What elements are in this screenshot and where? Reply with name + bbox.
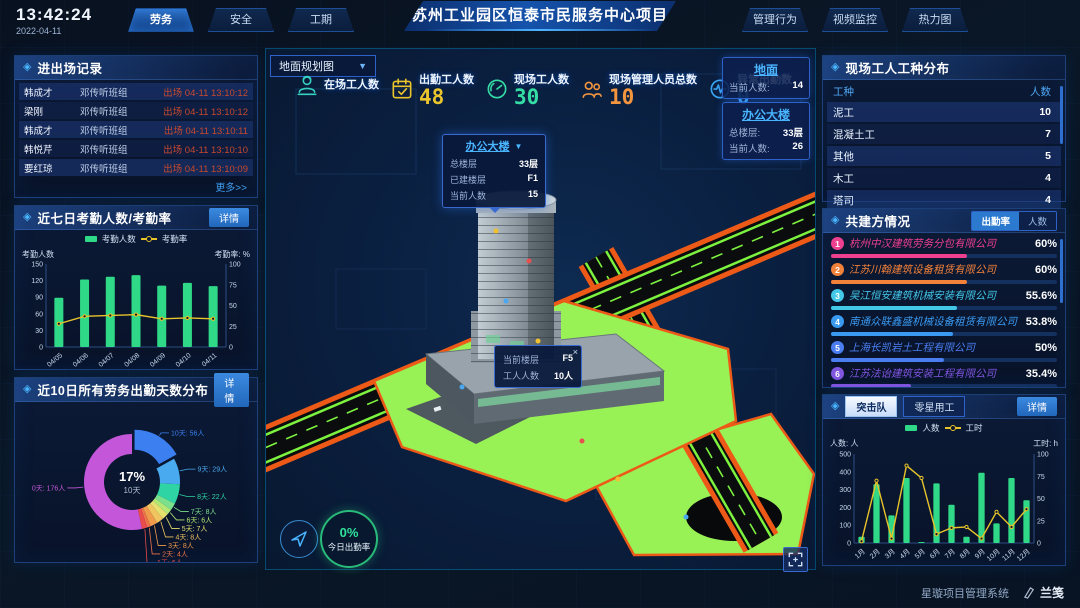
svg-text:2月: 2月 [868,547,881,560]
crew-name: 邓传听班组 [80,161,136,175]
svg-text:150: 150 [31,262,43,269]
table-row[interactable]: 木工4 [827,168,1061,188]
count-col-header: 人数 [1030,84,1051,99]
svg-text:10月: 10月 [985,547,1001,563]
progress-fill [831,358,944,362]
rank-badge: 3 [831,289,844,302]
scrollbar-thumb[interactable] [1060,239,1063,303]
tab-heatmap[interactable]: 热力图 [902,8,968,32]
rank-badge: 2 [831,263,844,276]
line-legend-marker [945,427,961,429]
table-row[interactable]: 泥工10 [827,102,1061,122]
exit-event: 出场 04-11 13:10:12 [136,85,248,99]
company-value: 53.8% [1026,316,1057,328]
svg-text:1月: 1月 [853,547,866,560]
assault-detail-button[interactable]: 详情 [1017,397,1057,416]
exit-event: 出场 04-11 13:10:11 [136,123,248,137]
building-tooltip: 办公大楼 ▼ 总楼层33层已建楼层F1当前人数15 [442,134,546,208]
crew-name: 邓传听班组 [80,85,136,99]
svg-text:9天: 29人: 9天: 29人 [198,466,228,474]
site-map-3d-view[interactable]: 地面规划图 ▼ 在场工人数出勤工人数48现场工人数30现场管理人员总数10异常出… [265,48,816,570]
trade-name: 塔司 [833,193,1045,208]
svg-text:6天: 6人: 6天: 6人 [186,516,212,524]
trade-count: 7 [1045,128,1051,140]
workday-donut-chart: 10天: 56人9天: 29人8天: 22人7天: 8人6天: 6人5天: 7人… [20,404,252,562]
svg-text:7月: 7月 [943,547,956,560]
trade-name: 其他 [833,149,1045,164]
stat-people: 现场管理人员总数10 [579,71,697,107]
row-value: F1 [527,173,538,186]
location-box-title[interactable]: 地面 [729,61,803,78]
company-line: 4南通众联鑫盛机械设备租赁有限公司53.8% [831,313,1057,330]
right-axis-caption: 工时: h [1033,438,1058,449]
assault-chart-area: 人数 工时 人数: 人 工时: h 0100200300400500025507… [823,421,1065,569]
trade-distribution-panel: ◈ 现场工人工种分布 工种 人数 泥工10混凝土工7其他5木工4塔司4 [822,55,1066,202]
svg-text:25: 25 [1037,518,1045,525]
stat-value: 10 [609,87,697,107]
row-label: 当前人数: [729,141,770,155]
company-name: 南通众联鑫盛机械设备租赁有限公司 [849,314,1021,329]
trade-name: 泥工 [833,105,1039,120]
worker-name: 韩成才 [24,123,80,137]
company-value: 60% [1035,264,1057,276]
header-left-tabs: 劳务 安全 工期 [128,8,354,32]
svg-text:100: 100 [1037,452,1049,459]
exit-event: 出场 04-11 13:10:12 [136,104,248,118]
top-header: 13:42:24 2022-04-11 劳务 安全 工期 苏州工业园区恒泰市民服… [0,0,1080,44]
company-value: 55.6% [1026,290,1057,302]
bar-legend-label: 人数 [922,422,939,434]
table-row[interactable]: 塔司4 [827,190,1061,210]
tooltip-row: 当前楼层F5 [503,353,573,366]
people-icon [579,76,605,102]
assault-legend: 人数 工时 [823,421,1065,435]
progress-fill [831,384,911,387]
distribution-panel-title: 近10日所有劳务出勤天数分布 [37,380,208,399]
row-label: 总楼层 [450,157,477,170]
tooltip-row: 总楼层33层 [450,157,538,170]
row-label: 已建楼层 [450,173,486,186]
entry-exit-panel-title: 进出场记录 [37,58,249,77]
stat-text: 在场工人数 [324,76,379,92]
company-line: 6江苏法诒建筑安装工程有限公司35.4% [831,365,1057,382]
tab-safety[interactable]: 安全 [208,8,274,32]
clock: 13:42:24 2022-04-11 [16,5,92,36]
tab-video-monitor[interactable]: 视频监控 [822,8,888,32]
stat-value: 30 [514,87,569,107]
svg-text:0: 0 [229,345,233,352]
workday-distribution-panel: ◈ 近10日所有劳务出勤天数分布 详情 10天: 56人9天: 29人8天: 2… [14,377,258,563]
diamond-icon: ◈ [831,215,839,226]
crew-name: 邓传听班组 [80,104,136,118]
row-label: 当前人数 [450,189,486,202]
entry-exit-panel-header: ◈ 进出场记录 [15,56,257,80]
footer-logo: 兰笺 [1023,584,1064,601]
location-box-row: 当前人数:14 [729,80,803,94]
stat-value: 48 [419,87,474,107]
brand-pen-icon [1023,586,1036,599]
location-box-row: 当前人数:26 [729,141,803,155]
svg-text:0: 0 [1037,541,1041,548]
svg-text:04/07: 04/07 [98,352,116,369]
svg-text:50: 50 [229,303,237,310]
progress-track [831,306,1057,310]
svg-text:300: 300 [839,487,851,494]
company-name: 江苏法诒建筑安装工程有限公司 [849,366,1021,381]
footer-logo-text: 兰笺 [1040,584,1064,601]
list-item[interactable]: 6江苏法诒建筑安装工程有限公司35.4% [831,365,1057,387]
svg-text:4月: 4月 [898,547,911,560]
table-row[interactable]: 韩悦芹邓传听班组出场 04-11 13:10:10 [19,140,253,157]
tab-headcount[interactable]: 人数 [1019,212,1056,230]
compass-icon [288,528,310,550]
worker-name: 韩成才 [24,85,80,99]
crew-name: 邓传听班组 [80,142,136,156]
row-value: F5 [562,353,573,366]
worker-icon [294,71,320,97]
location-box-ground: 地面当前人数:14 [722,57,810,99]
stat-gauge: 现场工人数30 [484,71,569,107]
svg-text:8天: 22人: 8天: 22人 [197,493,227,501]
list-item[interactable]: 2江苏川翰建筑设备租赁有限公司60% [831,261,1057,284]
svg-text:8月: 8月 [958,547,971,560]
floor-tooltip: × 当前楼层F5工人人数10人 [494,345,582,388]
svg-text:75: 75 [1037,474,1045,481]
chevron-down-icon[interactable]: ▼ [515,142,523,151]
trade-panel-title: 现场工人工种分布 [845,58,1057,77]
progress-track [831,280,1057,284]
svg-text:0: 0 [847,541,851,548]
tab-schedule[interactable]: 工期 [288,8,354,32]
svg-text:2天: 4人: 2天: 4人 [162,550,188,558]
svg-text:6月: 6月 [928,547,941,560]
bar-legend-label: 考勤人数 [102,233,136,245]
svg-text:120: 120 [31,278,43,285]
today-attendance-label: 今日出勤率 [328,541,371,553]
svg-text:9月: 9月 [973,547,986,560]
diamond-icon: ◈ [831,401,839,412]
page-title: 苏州工业园区恒泰市民服务中心项目 [404,1,676,31]
table-row[interactable]: 韩成才邓传听班组出场 04-11 13:10:12 [19,83,253,100]
svg-text:90: 90 [35,295,43,302]
trade-count: 5 [1045,150,1051,162]
trade-col-header: 工种 [833,84,1030,99]
assault-panel-header: ◈ 突击队 零星用工 详情 [823,395,1065,419]
table-row[interactable]: 混凝土工7 [827,124,1061,144]
entry-exit-table: 韩成才邓传听班组出场 04-11 13:10:12梁刚邓传听班组出场 04-11… [15,80,257,176]
distribution-detail-button[interactable]: 详情 [214,373,249,407]
row-value: 26 [792,141,803,155]
location-box-row: 总楼层:33层 [729,125,803,139]
rank-badge: 1 [831,237,844,250]
svg-text:04/09: 04/09 [149,352,167,369]
row-value: 15 [528,189,538,202]
system-name: 星璇项目管理系统 [921,585,1009,601]
attendance-panel-header: ◈ 近七日考勤人数/考勤率 详情 [15,206,257,230]
list-item[interactable]: 3吴江恒安建筑机械安装有限公司55.6% [831,287,1057,310]
company-value: 35.4% [1026,368,1057,380]
chevron-down-icon: ▼ [358,61,367,71]
svg-text:100: 100 [839,523,851,530]
svg-text:60: 60 [35,311,43,318]
rank-badge: 5 [831,341,844,354]
progress-fill [831,254,967,258]
attendance-panel-title: 近七日考勤人数/考勤率 [37,208,203,227]
attendance-combo-chart: 0306090120150025507510004/0504/0604/0704… [20,259,252,371]
svg-text:3天: 8人: 3天: 8人 [168,542,194,550]
svg-text:10天: 10天 [124,486,141,495]
attendance-7day-panel: ◈ 近七日考勤人数/考勤率 详情 考勤人数 考勤率 考勤人数 考勤率: % 03… [14,205,258,370]
worker-name: 韩悦芹 [24,142,80,156]
worker-name: 梁刚 [24,104,80,118]
trade-table: 泥工10混凝土工7其他5木工4塔司4 [823,102,1065,210]
svg-text:50: 50 [1037,496,1045,503]
tab-casual-labor[interactable]: 零星用工 [903,396,965,417]
company-name: 吴江恒安建筑机械安装有限公司 [849,288,1021,303]
tab-attendance-rate[interactable]: 出勤率 [972,212,1019,230]
stat-text: 现场工人数30 [514,71,569,107]
entry-exit-panel: ◈ 进出场记录 韩成才邓传听班组出场 04-11 13:10:12梁刚邓传听班组… [14,55,258,198]
trade-count: 4 [1045,172,1051,184]
svg-text:75: 75 [229,282,237,289]
line-legend-label: 工时 [966,422,983,434]
company-line: 5上海长凯岩土工程有限公司50% [831,339,1057,356]
company-line: 3吴江恒安建筑机械安装有限公司55.6% [831,287,1057,304]
company-name: 江苏川翰建筑设备租赁有限公司 [849,262,1030,277]
company-name: 上海长凯岩土工程有限公司 [849,340,1030,355]
company-line: 2江苏川翰建筑设备租赁有限公司60% [831,261,1057,278]
list-item[interactable]: 4南通众联鑫盛机械设备租赁有限公司53.8% [831,313,1057,336]
footer: 星璇项目管理系统 兰笺 [921,584,1064,601]
row-label: 当前楼层 [503,353,539,366]
distribution-panel-header: ◈ 近10日所有劳务出勤天数分布 详情 [15,378,257,402]
table-row[interactable]: 要红琼邓传听班组出场 04-11 13:10:09 [19,159,253,176]
trade-panel-header: ◈ 现场工人工种分布 [823,56,1065,80]
more-link[interactable]: 更多>> [15,178,257,194]
table-row[interactable]: 梁刚邓传听班组出场 04-11 13:10:12 [19,102,253,119]
company-line: 1杭州中汉建筑劳务分包有限公司60% [831,235,1057,252]
table-row[interactable]: 其他5 [827,146,1061,166]
worker-name: 要红琼 [24,161,80,175]
bar-legend-swatch [905,425,917,431]
fullscreen-button[interactable] [783,547,808,572]
row-label: 工人人数 [503,369,539,382]
company-panel-title: 共建方情况 [845,211,965,230]
progress-fill [831,332,953,336]
trade-table-header: 工种 人数 [823,80,1065,102]
progress-track [831,254,1057,258]
attendance-chart-area: 考勤人数 考勤率 考勤人数 考勤率: % 0306090120150025507… [15,232,257,373]
stat-text: 出勤工人数48 [419,71,474,107]
bar-legend-swatch [85,236,97,242]
diamond-icon: ◈ [23,384,31,395]
svg-text:04/06: 04/06 [72,352,90,369]
svg-text:5月: 5月 [913,547,926,560]
crew-name: 邓传听班组 [80,123,136,137]
compass-control[interactable] [280,520,318,558]
svg-text:400: 400 [839,469,851,476]
trade-name: 混凝土工 [833,127,1045,142]
list-item[interactable]: 1杭州中汉建筑劳务分包有限公司60% [831,235,1057,258]
location-box-title[interactable]: 办公大楼 [729,106,803,123]
company-value: 50% [1035,342,1057,354]
row-label: 总楼层: [729,125,760,139]
stat-calendar-check: 出勤工人数48 [389,71,474,107]
progress-fill [831,280,967,284]
diamond-icon: ◈ [831,62,839,73]
svg-text:30: 30 [35,328,43,335]
svg-text:7天: 8人: 7天: 8人 [191,508,217,516]
svg-text:17%: 17% [119,469,145,484]
list-item[interactable]: 5上海长凯岩土工程有限公司50% [831,339,1057,362]
svg-text:10天: 56人: 10天: 56人 [171,429,204,437]
svg-text:5天: 7人: 5天: 7人 [182,525,208,533]
tab-management-behavior[interactable]: 管理行为 [742,8,808,32]
row-value: 14 [792,80,803,94]
company-ranking-list: 1杭州中汉建筑劳务分包有限公司60%2江苏川翰建筑设备租赁有限公司60%3吴江恒… [823,233,1065,387]
close-icon[interactable]: × [573,347,578,357]
svg-text:11月: 11月 [1001,547,1017,562]
company-name: 杭州中汉建筑劳务分包有限公司 [849,236,1030,251]
line-legend-label: 考勤率 [162,233,188,245]
svg-text:0: 0 [39,345,43,352]
attendance-legend: 考勤人数 考勤率 [15,232,257,246]
header-right-tabs: 管理行为 视频监控 热力图 [742,8,968,32]
svg-text:100: 100 [229,262,241,269]
table-row[interactable]: 韩成才邓传听班组出场 04-11 13:10:11 [19,121,253,138]
diamond-icon: ◈ [23,62,31,73]
trade-name: 木工 [833,171,1045,186]
today-attendance-gauge: 0% 今日出勤率 [320,510,378,568]
current-time: 13:42:24 [16,5,92,25]
diamond-icon: ◈ [23,212,31,223]
svg-text:200: 200 [839,505,851,512]
assault-team-panel: ◈ 突击队 零星用工 详情 人数 工时 人数: 人 工时: h 01002003… [822,394,1066,566]
stat-text: 现场管理人员总数10 [609,71,697,107]
tab-labor[interactable]: 劳务 [128,8,194,32]
rank-badge: 4 [831,315,844,328]
trade-count: 10 [1039,106,1051,118]
attendance-detail-button[interactable]: 详情 [209,208,249,227]
company-metric-tabs: 出勤率 人数 [971,211,1057,231]
gauge-icon [484,76,510,102]
svg-text:04/10: 04/10 [175,352,193,369]
tooltip-row: 当前人数15 [450,189,538,202]
assault-combo-chart: 010020030040050002550751001月2月3月4月5月6月7月… [828,449,1060,567]
svg-text:04/08: 04/08 [123,352,141,369]
svg-text:04/11: 04/11 [201,352,219,368]
company-value: 60% [1035,238,1057,250]
svg-text:4天: 8人: 4天: 8人 [176,533,202,541]
progress-track [831,384,1057,387]
tab-assault-team[interactable]: 突击队 [845,396,897,417]
fullscreen-icon [787,551,804,568]
row-value: 33层 [519,157,538,170]
svg-text:12月: 12月 [1015,547,1031,563]
progress-track [831,358,1057,362]
partner-companies-panel: ◈ 共建方情况 出勤率 人数 1杭州中汉建筑劳务分包有限公司60%2江苏川翰建筑… [822,208,1066,388]
exit-event: 出场 04-11 13:10:09 [136,161,248,175]
site-stats-row: 在场工人数出勤工人数48现场工人数30现场管理人员总数10异常出勤数0 [294,71,792,107]
building-tooltip-title[interactable]: 办公大楼 [466,138,510,154]
tooltip-row: 工人人数10人 [503,369,573,382]
svg-text:3月: 3月 [883,547,896,560]
svg-text:500: 500 [839,452,851,459]
row-value: 10人 [554,369,573,382]
progress-track [831,332,1057,336]
row-value: 33层 [783,125,803,139]
calendar-check-icon [389,76,415,102]
line-legend-marker [141,238,157,240]
location-box-tower: 办公大楼总楼层:33层当前人数:26 [722,102,810,160]
tooltip-row: 已建楼层F1 [450,173,538,186]
company-panel-header: ◈ 共建方情况 出勤率 人数 [823,209,1065,233]
svg-text:0天: 176人: 0天: 176人 [32,484,65,492]
svg-text:1天: 6人: 1天: 6人 [157,559,183,562]
svg-text:25: 25 [229,324,237,331]
svg-text:04/05: 04/05 [46,352,64,369]
progress-fill [831,306,957,310]
exit-event: 出场 04-11 13:10:10 [136,142,248,156]
stat-label: 在场工人数 [324,76,379,92]
trade-count: 4 [1045,194,1051,206]
scrollbar-thumb[interactable] [1060,86,1063,144]
today-attendance-value: 0% [340,525,359,540]
stat-worker: 在场工人数 [294,71,379,97]
rank-badge: 6 [831,367,844,380]
left-axis-caption: 人数: 人 [830,438,858,449]
row-label: 当前人数: [729,80,770,94]
current-date: 2022-04-11 [16,26,92,36]
